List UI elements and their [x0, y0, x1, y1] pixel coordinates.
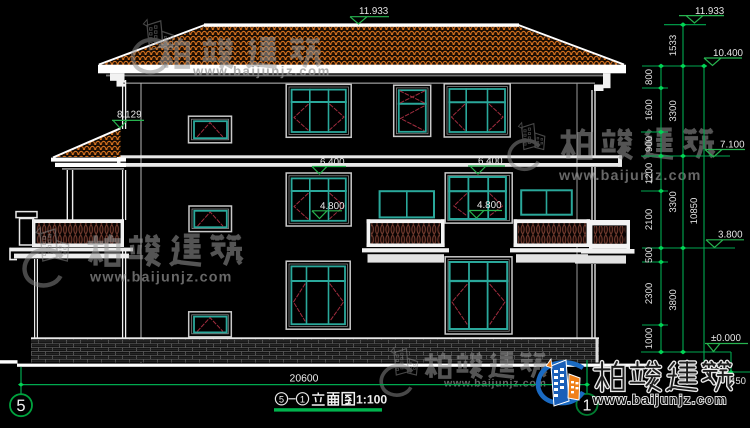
svg-text:1200: 1200	[644, 163, 655, 184]
svg-text:www.baijunjz.com: www.baijunjz.com	[592, 392, 728, 407]
svg-text:±0.000: ±0.000	[711, 333, 741, 344]
svg-text:2100: 2100	[644, 209, 655, 230]
svg-text:4.800: 4.800	[477, 200, 502, 211]
svg-text:8.129: 8.129	[117, 110, 142, 121]
svg-text:6.400: 6.400	[478, 156, 503, 167]
svg-text:900: 900	[644, 136, 655, 152]
svg-text:500: 500	[644, 247, 655, 263]
svg-text:5: 5	[279, 393, 284, 404]
svg-text:3800: 3800	[668, 289, 679, 310]
svg-text:5: 5	[16, 397, 25, 415]
svg-text:3300: 3300	[668, 191, 679, 212]
svg-text:www.baijunjz.com: www.baijunjz.com	[89, 270, 233, 286]
svg-text:1533: 1533	[668, 35, 679, 56]
svg-text:1600: 1600	[644, 99, 655, 120]
svg-text:7.100: 7.100	[720, 139, 745, 150]
svg-text:www.baijunjz.com: www.baijunjz.com	[558, 168, 702, 184]
svg-text:6.400: 6.400	[320, 157, 345, 168]
svg-text:3300: 3300	[668, 100, 679, 121]
svg-text:2300: 2300	[644, 283, 655, 304]
svg-text:1:100: 1:100	[356, 393, 387, 407]
svg-text:11.933: 11.933	[695, 6, 725, 17]
svg-text:4.800: 4.800	[320, 201, 345, 212]
svg-text:10.400: 10.400	[713, 48, 744, 59]
svg-text:www.baijunjz.com: www.baijunjz.com	[443, 378, 547, 390]
svg-text:1: 1	[583, 397, 592, 414]
svg-text:800: 800	[644, 69, 655, 85]
svg-text:10850: 10850	[689, 198, 700, 225]
svg-text:1000: 1000	[644, 328, 655, 349]
svg-text:20600: 20600	[290, 374, 319, 385]
svg-text:3.800: 3.800	[718, 230, 743, 241]
svg-text:11.933: 11.933	[359, 6, 389, 17]
svg-text:1: 1	[300, 393, 305, 404]
svg-text:www.baijunjz.com: www.baijunjz.com	[192, 64, 331, 79]
